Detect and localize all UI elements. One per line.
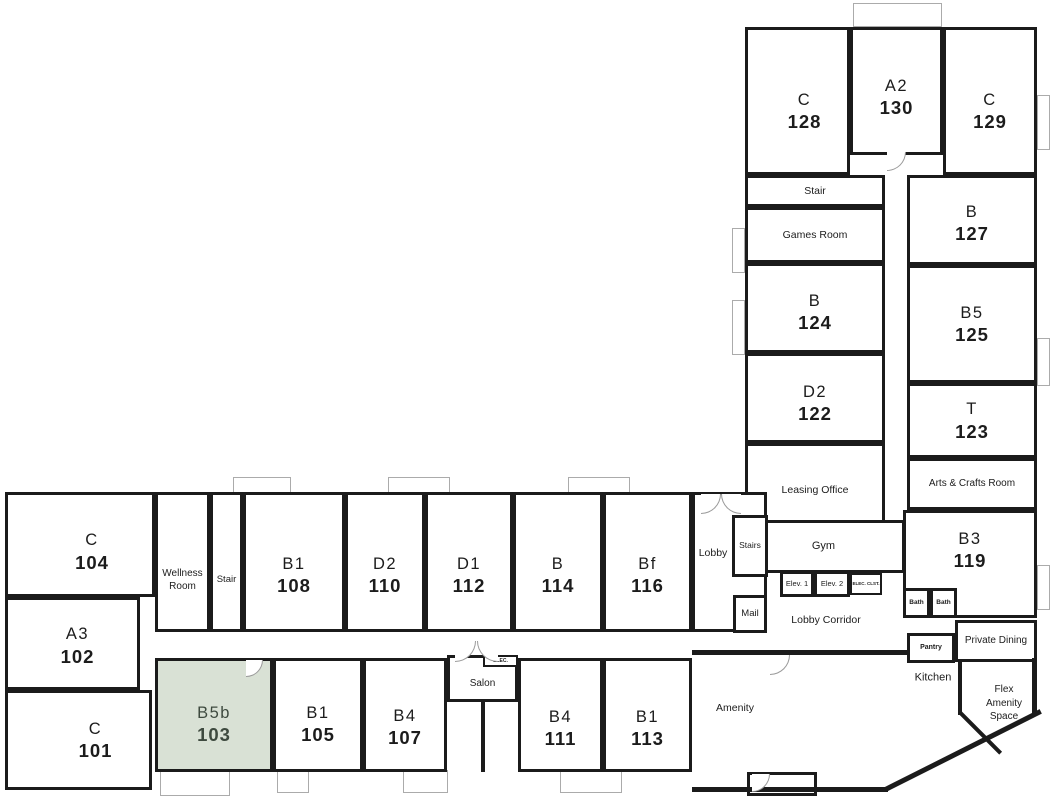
patio-1 xyxy=(160,770,230,796)
unit-number-label: 105 xyxy=(301,724,335,745)
unit-type-label: B4 xyxy=(549,707,572,728)
unit-number-label: 119 xyxy=(954,550,987,571)
amenity-label: Amenity xyxy=(716,701,754,715)
room-name-label: Stairs xyxy=(739,540,761,551)
room-c-101[interactable]: C101 xyxy=(5,690,152,790)
unit-type-label: B xyxy=(966,202,979,223)
unit-type-label: C xyxy=(85,530,98,551)
wall-amenity-top xyxy=(692,650,908,655)
unit-number-label: 102 xyxy=(61,646,95,667)
room-elev-2[interactable]: Elev. 2 xyxy=(814,571,850,597)
room-a2-130[interactable]: A2130 xyxy=(850,27,943,155)
room-name-label: Bath xyxy=(936,599,950,608)
room-pantry: Pantry xyxy=(907,633,955,663)
room-wellness-room: Wellness Room xyxy=(155,492,210,632)
bay-right-2 xyxy=(1037,338,1050,386)
room-d1-112[interactable]: D1112 xyxy=(425,492,513,632)
room-mail: Mail xyxy=(733,595,767,633)
room-c-129[interactable]: C129 xyxy=(943,27,1037,175)
unit-type-label: D1 xyxy=(457,554,481,575)
door-amenity-icon xyxy=(770,655,790,675)
unit-number-label: 124 xyxy=(798,312,832,333)
unit-type-label: B xyxy=(809,291,822,312)
unit-number-label: 114 xyxy=(542,575,575,596)
unit-type-label: B1 xyxy=(282,554,305,575)
unit-number-label: 108 xyxy=(277,575,311,596)
room-name-label: ELEC. CLST. xyxy=(852,581,879,587)
room-name-label: Leasing Office xyxy=(782,483,849,497)
unit-type-label: B xyxy=(552,554,565,575)
unit-number-label: 129 xyxy=(973,111,1007,132)
room-games-room: Games Room xyxy=(745,207,885,263)
wall-salon-stub xyxy=(481,700,485,772)
room-name-label: Private Dining xyxy=(965,634,1027,648)
room-name-label: Mail xyxy=(741,608,758,621)
room-name-label: Gym xyxy=(812,539,835,554)
room-bf-116[interactable]: Bf116 xyxy=(603,492,692,632)
room-stair-west: Stair xyxy=(210,492,243,632)
room-name-label: Wellness Room xyxy=(158,567,207,594)
balcony-top-2 xyxy=(388,477,450,493)
unit-number-label: 123 xyxy=(955,421,989,442)
room-t-123[interactable]: T123 xyxy=(907,383,1037,458)
room-arts-crafts-room: Arts & Crafts Room xyxy=(907,458,1037,510)
room-name-label: Pantry xyxy=(920,643,942,652)
unit-type-label: C xyxy=(983,90,996,111)
room-d2-110[interactable]: D2110 xyxy=(345,492,425,632)
room-b1-108[interactable]: B1108 xyxy=(243,492,345,632)
unit-number-label: 112 xyxy=(453,575,486,596)
room-name-label: Arts & Crafts Room xyxy=(929,477,1015,491)
unit-number-label: 111 xyxy=(545,728,577,749)
room-name-label: Stair xyxy=(217,574,237,587)
unit-type-label: C xyxy=(89,719,102,740)
room-b-127[interactable]: B127 xyxy=(907,175,1037,265)
room-name-label: Elev. 1 xyxy=(786,579,808,589)
bay-left-2 xyxy=(732,300,745,355)
room-b5-125[interactable]: B5125 xyxy=(907,265,1037,383)
room-name-label: Games Room xyxy=(783,228,848,242)
unit-number-label: 103 xyxy=(197,724,231,745)
room-elev-1[interactable]: Elev. 1 xyxy=(780,571,814,597)
balcony-top-1 xyxy=(233,477,291,493)
room-gym: Gym xyxy=(762,520,905,573)
unit-type-label: B5b xyxy=(197,703,231,724)
room-b1-105[interactable]: B1105 xyxy=(273,658,363,772)
patio-3 xyxy=(403,770,448,793)
room-bath-2: Bath xyxy=(930,588,957,618)
wall-amenity-bottom xyxy=(692,787,888,792)
room-a3-102[interactable]: A3102 xyxy=(5,597,140,690)
patio-2 xyxy=(277,770,309,793)
unit-type-label: Bf xyxy=(638,554,657,575)
unit-type-label: B1 xyxy=(636,707,659,728)
unit-type-label: B3 xyxy=(958,529,981,550)
bay-right-3 xyxy=(1037,565,1050,610)
room-stair-north: Stair xyxy=(745,175,885,207)
unit-type-label: T xyxy=(966,399,978,420)
room-b-114[interactable]: B114 xyxy=(513,492,603,632)
room-name-label: Bath xyxy=(909,599,923,608)
patio-4 xyxy=(560,770,622,793)
bay-left-1 xyxy=(732,228,745,273)
room-b1-113[interactable]: B1113 xyxy=(603,658,692,772)
floor-plan-canvas: C128A2130C129StairGames RoomB127B124B512… xyxy=(0,0,1051,799)
room-stairs-lobby: Stairs xyxy=(732,515,768,577)
room-private-dining: Private Dining xyxy=(955,620,1037,662)
door-a2-icon xyxy=(887,152,906,171)
lobby-label: Lobby xyxy=(699,546,728,560)
unit-number-label: 101 xyxy=(79,740,113,761)
unit-number-label: 128 xyxy=(788,111,822,132)
room-b-124[interactable]: B124 xyxy=(745,263,885,353)
room-c-104[interactable]: C104 xyxy=(5,492,155,597)
unit-number-label: 127 xyxy=(955,223,989,244)
unit-number-label: 113 xyxy=(631,728,664,749)
room-c-128[interactable]: C128 xyxy=(745,27,850,175)
kitchen-label: Kitchen xyxy=(915,671,952,686)
unit-type-label: D2 xyxy=(803,382,827,403)
balcony-a2 xyxy=(853,3,942,27)
unit-type-label: B5 xyxy=(960,303,983,324)
room-elec-clst: ELEC. CLST. xyxy=(850,573,882,595)
room-name-label: Stair xyxy=(804,184,826,198)
unit-number-label: 104 xyxy=(75,552,109,573)
unit-number-label: 122 xyxy=(798,403,832,424)
room-b4-111[interactable]: B4111 xyxy=(518,658,603,772)
unit-type-label: D2 xyxy=(373,554,397,575)
room-name-label: Elev. 2 xyxy=(821,579,843,589)
room-bath-1: Bath xyxy=(903,588,930,618)
unit-type-label: C xyxy=(798,90,811,111)
balcony-top-3 xyxy=(568,477,630,493)
lobby-corridor-label: Lobby Corridor xyxy=(791,613,860,627)
room-name-label: Salon xyxy=(470,677,496,691)
room-b5b-103[interactable]: B5b103 xyxy=(155,658,273,772)
unit-type-label: B1 xyxy=(306,703,329,724)
unit-type-label: A2 xyxy=(885,76,908,97)
unit-type-label: B4 xyxy=(393,706,416,727)
room-b4-107[interactable]: B4107 xyxy=(363,658,447,772)
wall-kitchen-divider xyxy=(958,662,962,715)
unit-number-label: 130 xyxy=(880,97,914,118)
unit-number-label: 107 xyxy=(388,727,422,748)
bay-right-1 xyxy=(1037,95,1050,150)
room-d2-122[interactable]: D2122 xyxy=(745,353,885,443)
unit-type-label: A3 xyxy=(66,624,89,645)
unit-number-label: 110 xyxy=(369,575,402,596)
unit-number-label: 116 xyxy=(631,575,664,596)
wall-right-lower xyxy=(1032,658,1037,716)
flex-amenity-space-label: Flex Amenity Space xyxy=(986,683,1022,724)
unit-number-label: 125 xyxy=(955,324,989,345)
